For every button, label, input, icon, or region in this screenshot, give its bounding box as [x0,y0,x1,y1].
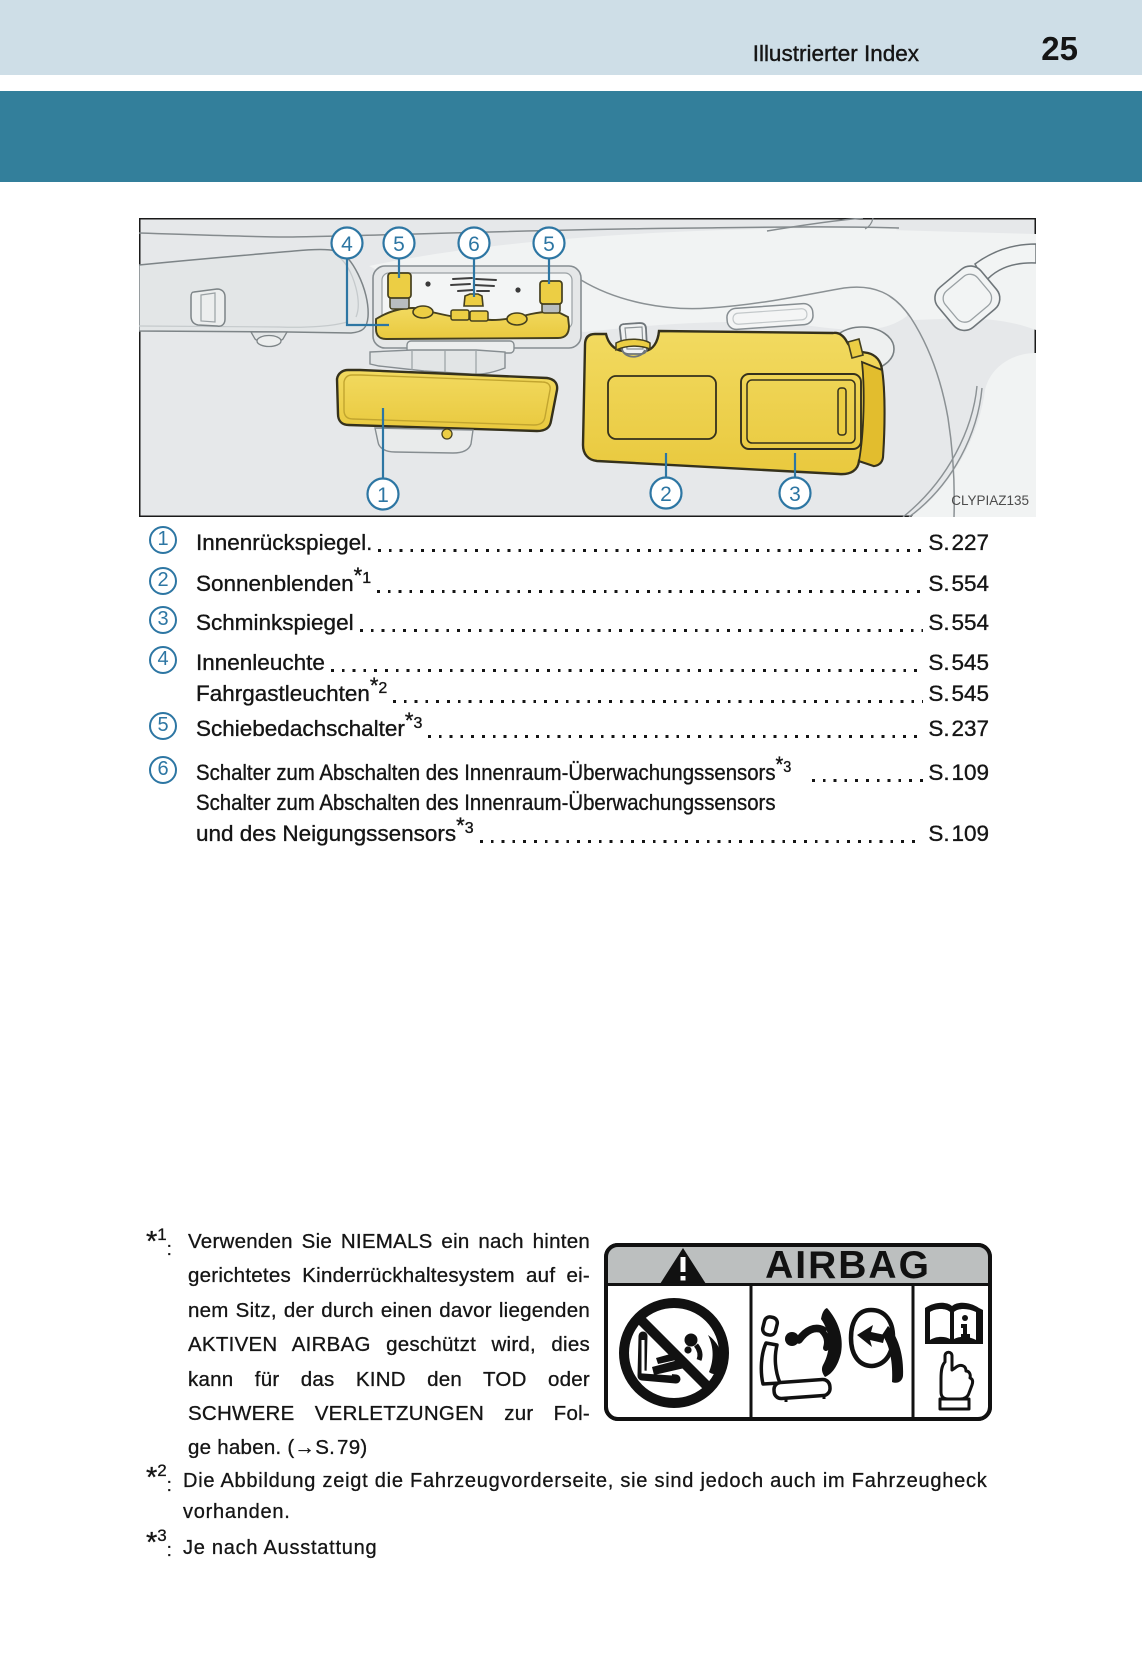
svg-text:1: 1 [377,484,389,507]
svg-text:4: 4 [341,233,353,256]
svg-text:5: 5 [393,233,405,256]
svg-text:6: 6 [468,233,480,256]
svg-text:CLYPIAZ135: CLYPIAZ135 [951,493,1029,508]
svg-text:2: 2 [660,483,672,506]
svg-text:AIRBAG: AIRBAG [765,1244,931,1287]
svg-text:3: 3 [789,483,801,506]
svg-text:5: 5 [543,233,555,256]
